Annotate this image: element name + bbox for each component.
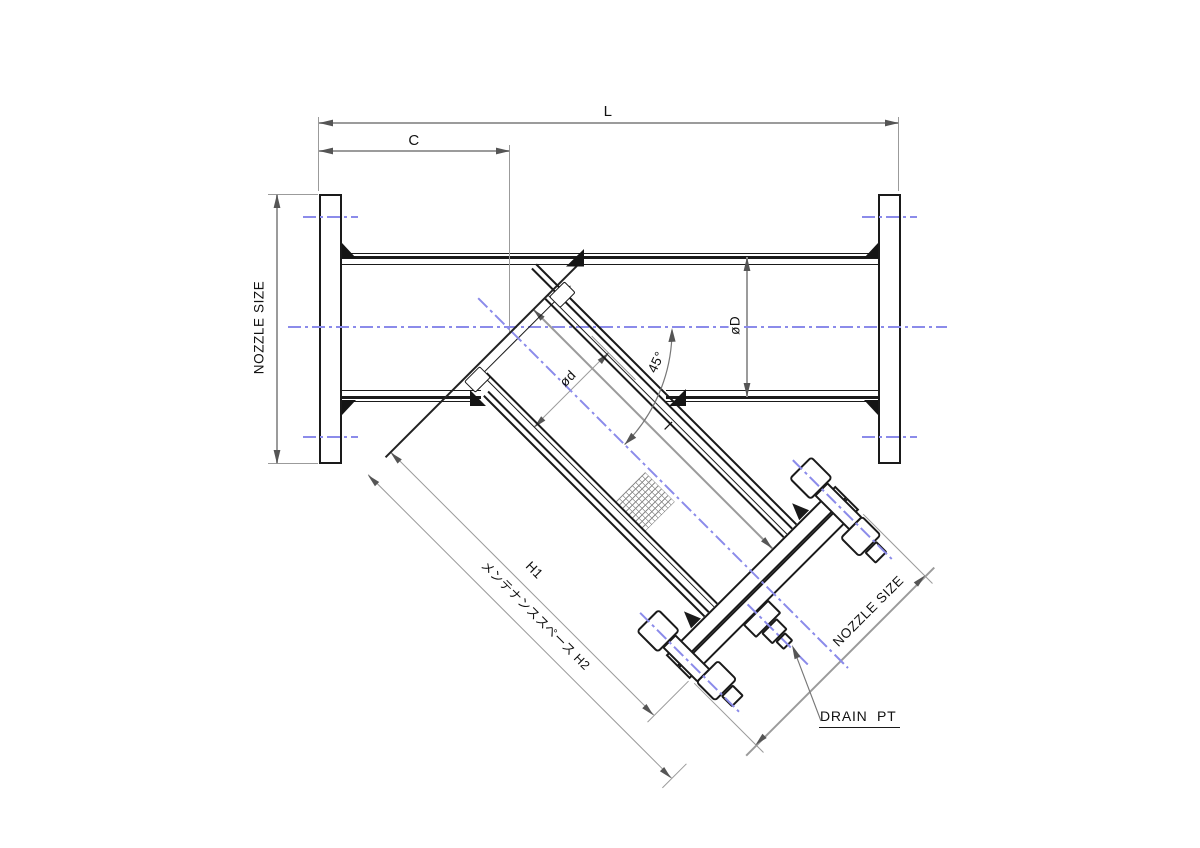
main-axis-centerline <box>288 326 947 328</box>
bolt-centerline-outlet-bottom <box>862 436 917 438</box>
bolt-centerline-outlet-top <box>862 216 917 218</box>
pipe-top-wall-line <box>342 256 878 259</box>
pipe-bottom-wall-line-left <box>342 396 481 399</box>
strainer-screen-mesh <box>615 472 674 531</box>
technical-drawing-canvas: H1 メンテナンススペース H2 l ød NOZZLE SIZE L C NO… <box>0 0 1200 848</box>
ext-line-left <box>318 117 319 191</box>
arc-arrow-top <box>668 328 675 342</box>
annotation-overlay <box>0 0 1200 848</box>
label-screen-length: l <box>660 421 674 435</box>
ext-line-nozzle-bottom <box>268 463 318 464</box>
bolt-centerline-inlet-bottom <box>303 436 358 438</box>
dim-line-nozzle-left <box>276 194 277 464</box>
ext-line-H1-cover-face <box>647 680 689 722</box>
label-drain-pt: DRAIN PT <box>820 709 896 724</box>
label-nozzle-size-branch: NOZZLE SIZE <box>811 553 928 670</box>
ext-line-C-right <box>509 145 510 332</box>
screen-rim-lug-upper <box>549 281 576 308</box>
arc-arrow-bottom <box>625 433 637 445</box>
bolt-centerline-inlet-top <box>303 216 358 218</box>
dim-line-C <box>319 150 510 151</box>
dim-line-H1 <box>390 452 654 716</box>
label-nozzle-size-main: NOZZLE SIZE <box>253 247 268 407</box>
label-maintenance-space-H2: メンテナンススペース H2 <box>435 516 636 717</box>
dim-line-L <box>319 122 899 123</box>
arrow-nozzle-branch-up <box>914 573 927 586</box>
pipe-top-bore-line <box>342 264 878 265</box>
pipe-top-outer-thin-line <box>342 253 878 254</box>
label-screen-diameter: ød <box>542 353 595 406</box>
ext-line-right <box>898 117 899 191</box>
pipe-bottom-wall-line-right <box>666 396 878 399</box>
pipe-bottom-outer-thin-line-left <box>342 401 481 402</box>
label-body-diameter: øD <box>729 295 744 355</box>
label-branch-angle: 45° <box>641 339 673 385</box>
label-overall-length-L: L <box>558 104 658 121</box>
pocket-wall-lower-outer <box>483 395 706 618</box>
outlet-flange <box>878 194 901 464</box>
label-dim-C: C <box>366 133 462 150</box>
pipe-bottom-outer-thin-line-right <box>666 401 878 402</box>
inlet-flange <box>319 194 342 464</box>
pipe-bottom-bore-line-left <box>342 390 481 391</box>
ext-line-nozzle-top <box>268 194 318 195</box>
screen-rim-line <box>385 264 579 458</box>
drain-pt-underline <box>819 727 900 728</box>
arrow-nozzle-branch-down <box>753 734 766 747</box>
dimension-arrowheads <box>274 120 899 464</box>
pipe-bottom-bore-line-right <box>666 390 878 391</box>
